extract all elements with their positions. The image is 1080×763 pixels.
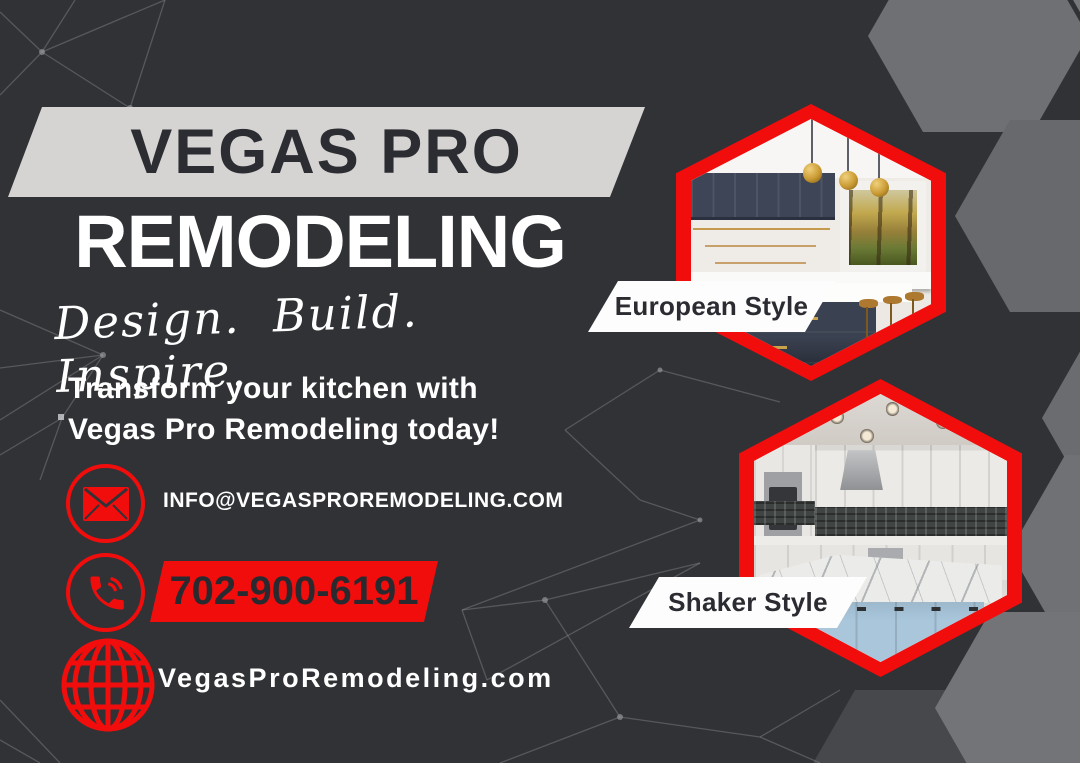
headline-line1: Transform your kitchen with [68,368,500,409]
photo-barstool [905,292,924,301]
photo-barstool-leg [866,307,868,342]
gallery-card-european [676,104,946,381]
envelope-icon [66,464,145,543]
globe-icon [58,635,158,735]
photo-barstool [883,296,902,305]
headline: Transform your kitchen with Vegas Pro Re… [68,368,500,450]
phone-icon [66,553,145,632]
gallery-card-shaker [739,379,1022,677]
photo-pendant-light [803,163,822,182]
style-label-european-text: European Style [615,291,808,322]
decor-hexagon [955,120,1080,312]
flyer-canvas: VEGAS PRO REMODELING Design. Build. Insp… [0,0,1080,763]
photo-shelf [705,245,815,247]
website-url: VegasProRemodeling.com [158,663,554,694]
photo-brass-rail [693,228,830,230]
photo-shelf [715,262,806,264]
brand-banner: VEGAS PRO [8,107,645,197]
photo-pendant-stem [811,119,813,163]
phone-banner: 702-900-6191 [150,561,438,622]
phone-number: 702-900-6191 [169,569,418,614]
globe-icon-badge [58,635,158,740]
style-label-shaker-text: Shaker Style [668,587,828,618]
phone-icon-badge [66,553,145,632]
photo-slate-backsplash [815,507,1007,536]
photo-recessed-light [860,429,874,443]
photo-slate-backsplash [754,501,815,525]
brand-name-secondary: REMODELING [0,199,640,284]
photo-barstool [859,299,878,308]
brand-name-primary: VEGAS PRO [130,116,523,188]
style-label-european: European Style [588,281,835,332]
style-label-shaker: Shaker Style [629,577,867,628]
headline-line2: Vegas Pro Remodeling today! [68,409,500,450]
photo-pendant-light [839,171,858,190]
email-icon-badge [66,464,145,543]
email-address: INFO@VEGASPROREMODELING.COM [163,489,563,513]
photo-perimeter-counter [754,536,1007,545]
